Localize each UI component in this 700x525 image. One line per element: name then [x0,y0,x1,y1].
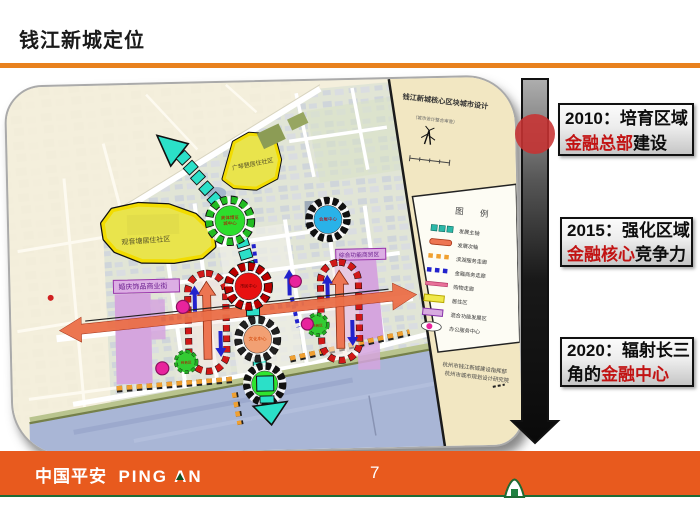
svg-text:商务区: 商务区 [181,360,192,365]
